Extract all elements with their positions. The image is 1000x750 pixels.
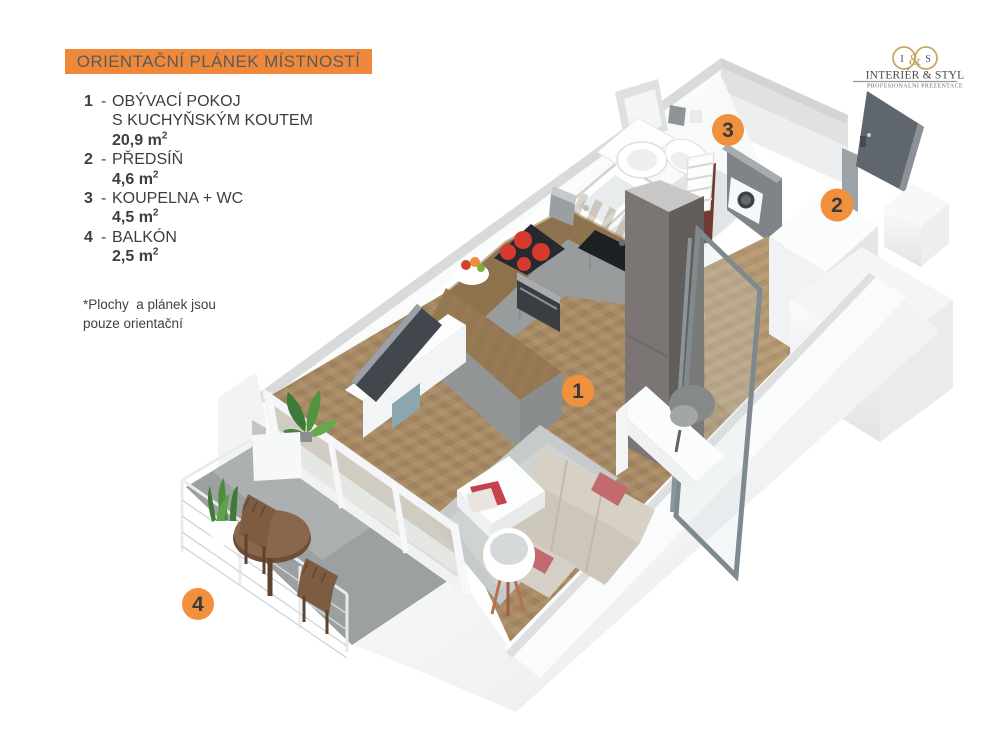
svg-text:4: 4 — [192, 593, 204, 616]
svg-text:1: 1 — [572, 380, 584, 403]
svg-text:3: 3 — [722, 119, 734, 142]
svg-text:2: 2 — [831, 194, 843, 217]
